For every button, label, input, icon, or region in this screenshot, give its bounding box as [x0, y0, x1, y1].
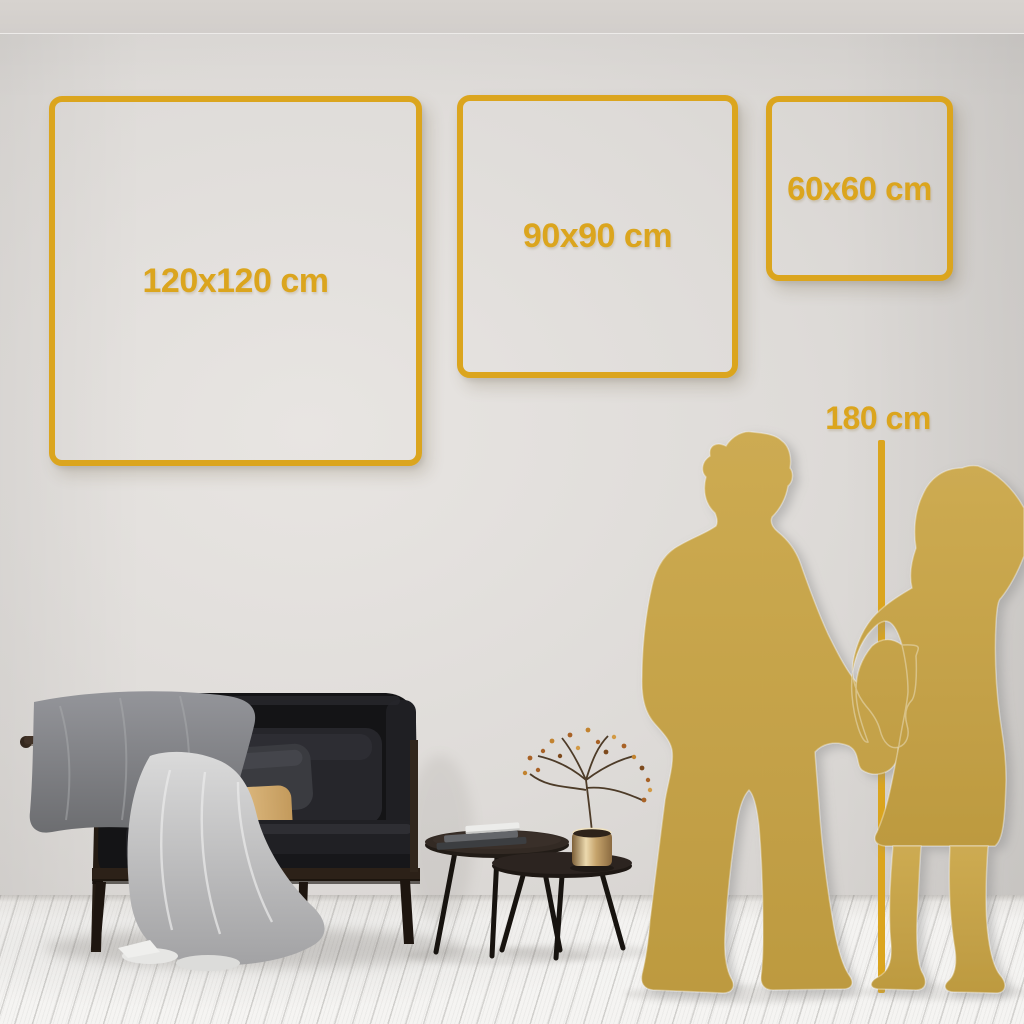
blanket-pool-2 — [176, 955, 240, 971]
height-ruler-label: 180 cm — [816, 400, 940, 437]
man-silhouette — [641, 432, 898, 993]
woman-right-leg — [945, 846, 1005, 993]
sofa — [20, 691, 474, 971]
room-scene — [0, 0, 1024, 1024]
table-shadow-2 — [502, 944, 658, 960]
sofa-right-post — [410, 740, 418, 872]
woman-silhouette — [852, 466, 1024, 846]
couple-silhouette — [641, 432, 1024, 993]
branches — [530, 736, 642, 832]
